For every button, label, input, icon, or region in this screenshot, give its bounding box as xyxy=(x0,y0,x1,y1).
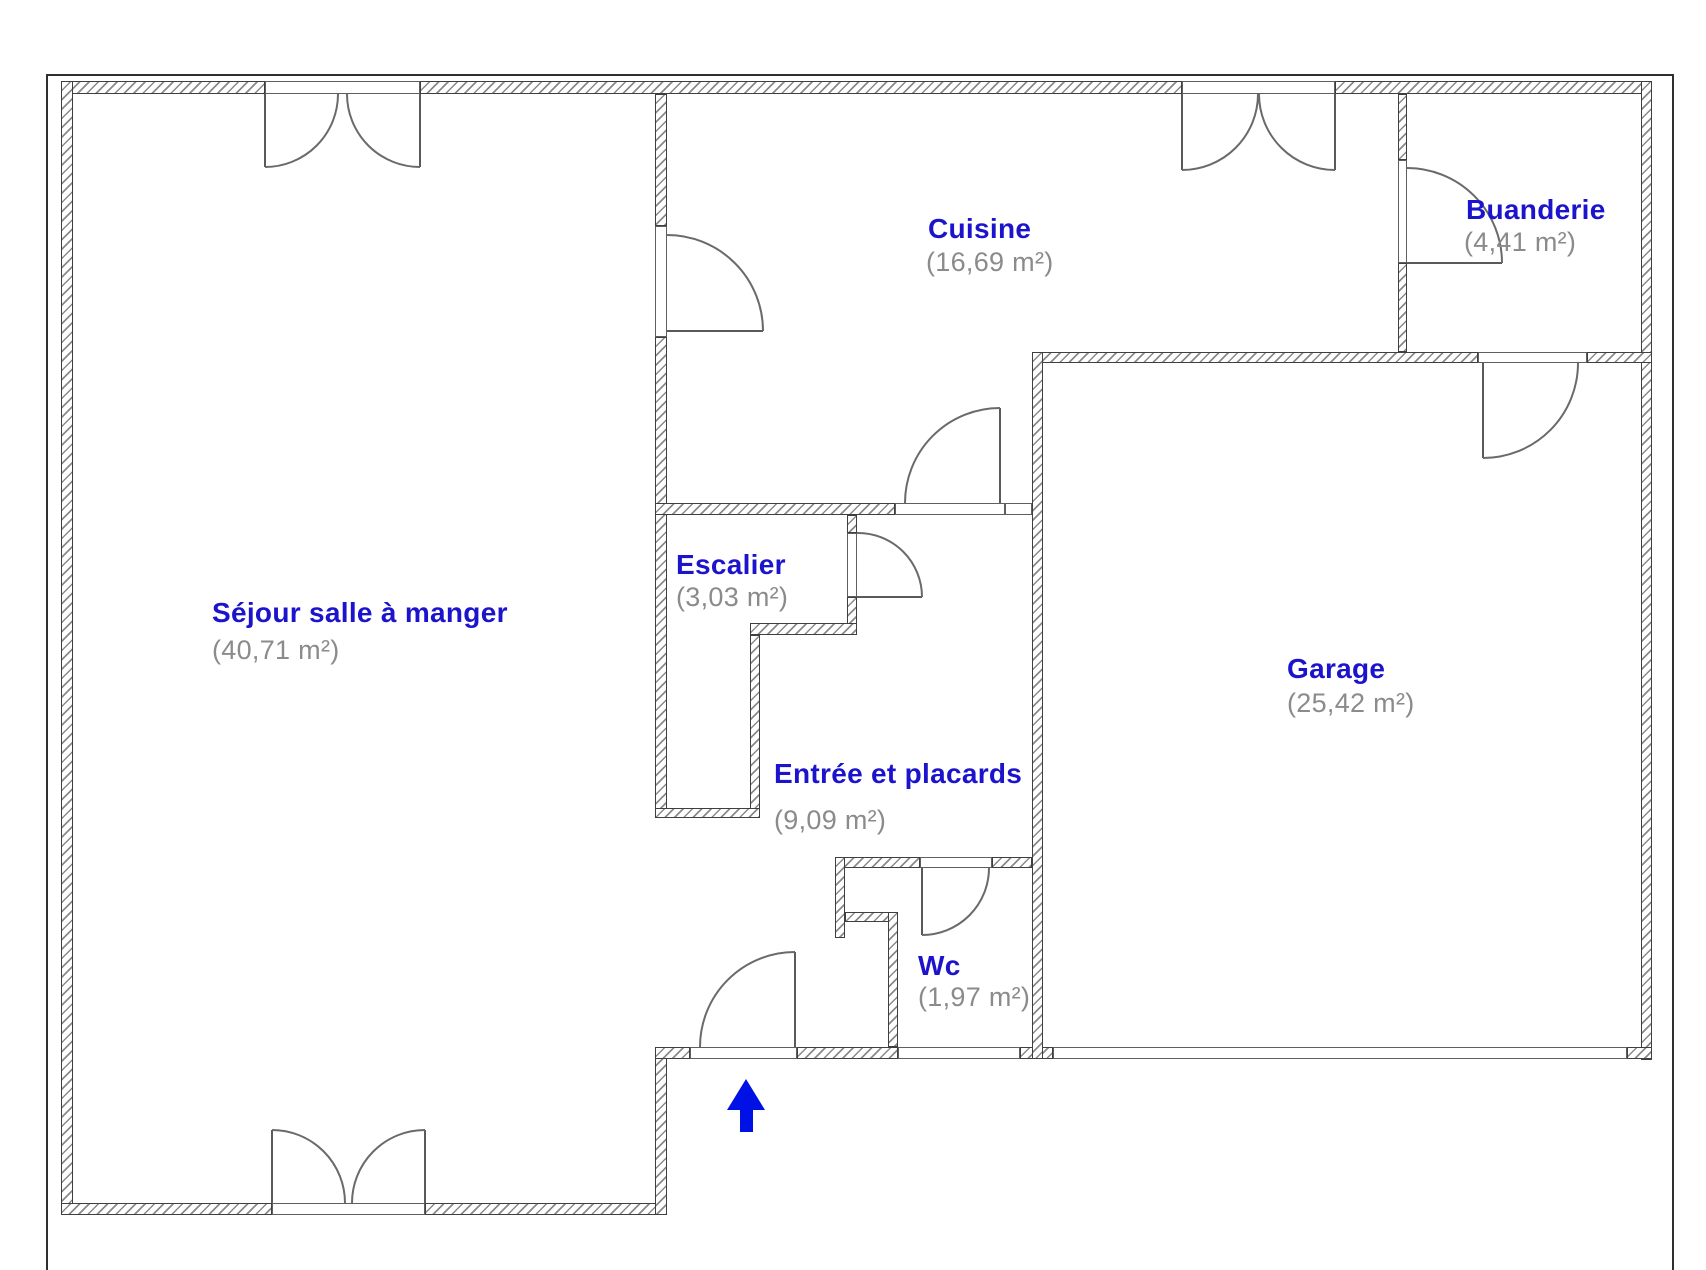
door-arc xyxy=(857,533,922,597)
room-area-wc: (1,97 m²) xyxy=(918,983,1030,1013)
door-arc xyxy=(352,1130,425,1203)
room-label-escalier: Escalier xyxy=(676,550,786,581)
room-area-garage: (25,42 m²) xyxy=(1287,689,1415,719)
door-arc xyxy=(922,868,989,935)
window-arc xyxy=(1182,94,1258,170)
room-area-escalier: (3,03 m²) xyxy=(676,583,788,613)
room-area-entree: (9,09 m²) xyxy=(774,806,886,836)
window-arc xyxy=(265,94,338,167)
door-arc xyxy=(1483,363,1578,458)
door-arc xyxy=(667,235,763,331)
entrance-arrow-shaft xyxy=(740,1106,753,1132)
room-label-cuisine: Cuisine xyxy=(928,214,1031,245)
room-area-sejour: (40,71 m²) xyxy=(212,636,340,666)
door-arc xyxy=(905,408,1000,503)
window-arc xyxy=(347,94,420,167)
door-arc xyxy=(272,1130,345,1203)
window-arc xyxy=(1259,94,1335,170)
room-label-garage: Garage xyxy=(1287,654,1385,685)
room-label-entree: Entrée et placards xyxy=(774,759,1022,790)
floor-plan: Séjour salle à manger (40,71 m²) Cuisine… xyxy=(0,0,1706,1270)
room-area-buanderie: (4,41 m²) xyxy=(1464,228,1576,258)
room-label-buanderie: Buanderie xyxy=(1466,195,1606,226)
room-label-sejour: Séjour salle à manger xyxy=(212,598,508,629)
door-arc xyxy=(700,952,795,1047)
room-label-wc: Wc xyxy=(918,951,961,982)
room-area-cuisine: (16,69 m²) xyxy=(926,248,1054,278)
